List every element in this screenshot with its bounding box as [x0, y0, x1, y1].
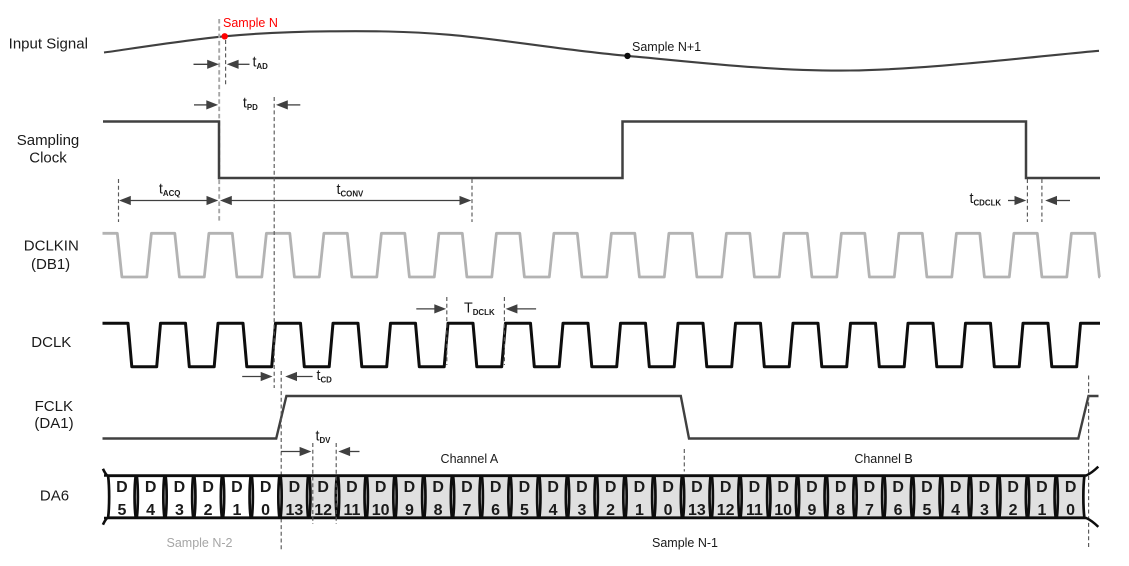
svg-text:D: D: [174, 479, 186, 496]
svg-text:Sampling: Sampling: [17, 132, 80, 149]
svg-text:2: 2: [606, 502, 615, 519]
svg-text:D: D: [1036, 479, 1048, 496]
svg-text:D: D: [404, 479, 416, 496]
svg-text:D: D: [231, 479, 243, 496]
svg-text:D: D: [864, 479, 876, 496]
svg-text:12: 12: [314, 502, 332, 519]
svg-text:3: 3: [175, 502, 184, 519]
svg-text:11: 11: [343, 502, 360, 519]
svg-text:1: 1: [1037, 502, 1046, 519]
svg-text:6: 6: [894, 502, 903, 519]
svg-text:D: D: [835, 479, 847, 496]
svg-text:DCLK: DCLK: [31, 334, 71, 351]
svg-text:Channel B: Channel B: [854, 452, 912, 466]
svg-text:TDCLK: TDCLK: [464, 301, 495, 318]
svg-text:Sample N+1: Sample N+1: [632, 40, 701, 54]
svg-text:D: D: [979, 479, 991, 496]
svg-text:D: D: [1065, 479, 1077, 496]
svg-text:0: 0: [664, 502, 673, 519]
svg-text:Sample N-2: Sample N-2: [167, 536, 233, 550]
svg-text:4: 4: [951, 502, 960, 519]
svg-text:DCLKIN: DCLKIN: [24, 237, 79, 254]
svg-text:2: 2: [1009, 502, 1018, 519]
svg-text:(DA1): (DA1): [34, 415, 73, 432]
svg-text:5: 5: [520, 502, 529, 519]
svg-text:D: D: [317, 479, 329, 496]
svg-text:9: 9: [405, 502, 414, 519]
svg-text:3: 3: [980, 502, 989, 519]
svg-text:D: D: [662, 479, 674, 496]
svg-text:12: 12: [717, 502, 735, 519]
svg-text:5: 5: [117, 502, 126, 519]
svg-text:4: 4: [146, 502, 155, 519]
svg-text:D: D: [921, 479, 933, 496]
svg-text:tDV: tDV: [316, 429, 332, 446]
svg-text:1: 1: [635, 502, 644, 519]
svg-text:0: 0: [261, 502, 270, 519]
svg-text:D: D: [432, 479, 444, 496]
svg-text:7: 7: [462, 502, 471, 519]
svg-text:D: D: [777, 479, 789, 496]
svg-text:tPD: tPD: [243, 96, 258, 113]
svg-text:7: 7: [865, 502, 874, 519]
svg-text:D: D: [289, 479, 301, 496]
svg-text:DA6: DA6: [40, 487, 69, 504]
svg-text:D: D: [145, 479, 157, 496]
svg-text:0: 0: [1066, 502, 1075, 519]
svg-text:13: 13: [688, 502, 706, 519]
svg-text:8: 8: [434, 502, 443, 519]
svg-text:D: D: [749, 479, 761, 496]
svg-text:5: 5: [922, 502, 931, 519]
svg-text:D: D: [1007, 479, 1019, 496]
svg-text:1: 1: [232, 502, 241, 519]
svg-text:D: D: [720, 479, 732, 496]
svg-text:13: 13: [286, 502, 304, 519]
svg-text:D: D: [892, 479, 904, 496]
svg-text:9: 9: [807, 502, 816, 519]
svg-text:2: 2: [204, 502, 213, 519]
svg-text:D: D: [346, 479, 358, 496]
svg-text:Input Signal: Input Signal: [9, 36, 88, 53]
svg-text:D: D: [375, 479, 387, 496]
svg-text:Clock: Clock: [29, 150, 67, 167]
svg-text:D: D: [260, 479, 272, 496]
svg-text:D: D: [806, 479, 818, 496]
svg-text:10: 10: [774, 502, 792, 519]
svg-text:D: D: [202, 479, 214, 496]
svg-text:D: D: [576, 479, 588, 496]
svg-text:4: 4: [549, 502, 558, 519]
svg-text:tCD: tCD: [317, 368, 333, 385]
svg-text:D: D: [490, 479, 502, 496]
svg-text:FCLK: FCLK: [35, 398, 73, 415]
svg-text:D: D: [691, 479, 703, 496]
svg-text:6: 6: [491, 502, 500, 519]
svg-text:D: D: [547, 479, 559, 496]
svg-text:3: 3: [577, 502, 586, 519]
svg-text:D: D: [950, 479, 962, 496]
svg-text:tCONV: tCONV: [337, 182, 365, 199]
svg-text:Sample N-1: Sample N-1: [652, 536, 718, 550]
svg-text:11: 11: [746, 502, 763, 519]
svg-text:tCDCLK: tCDCLK: [970, 191, 1002, 208]
svg-text:Sample N: Sample N: [223, 16, 278, 30]
svg-text:D: D: [519, 479, 531, 496]
svg-text:D: D: [461, 479, 473, 496]
svg-text:D: D: [116, 479, 128, 496]
svg-text:tACQ: tACQ: [159, 182, 181, 199]
svg-text:D: D: [605, 479, 617, 496]
svg-text:Channel A: Channel A: [441, 452, 499, 466]
svg-text:8: 8: [836, 502, 845, 519]
svg-text:D: D: [634, 479, 646, 496]
svg-text:10: 10: [372, 502, 390, 519]
svg-text:(DB1): (DB1): [31, 256, 70, 273]
svg-text:tAD: tAD: [253, 55, 269, 72]
